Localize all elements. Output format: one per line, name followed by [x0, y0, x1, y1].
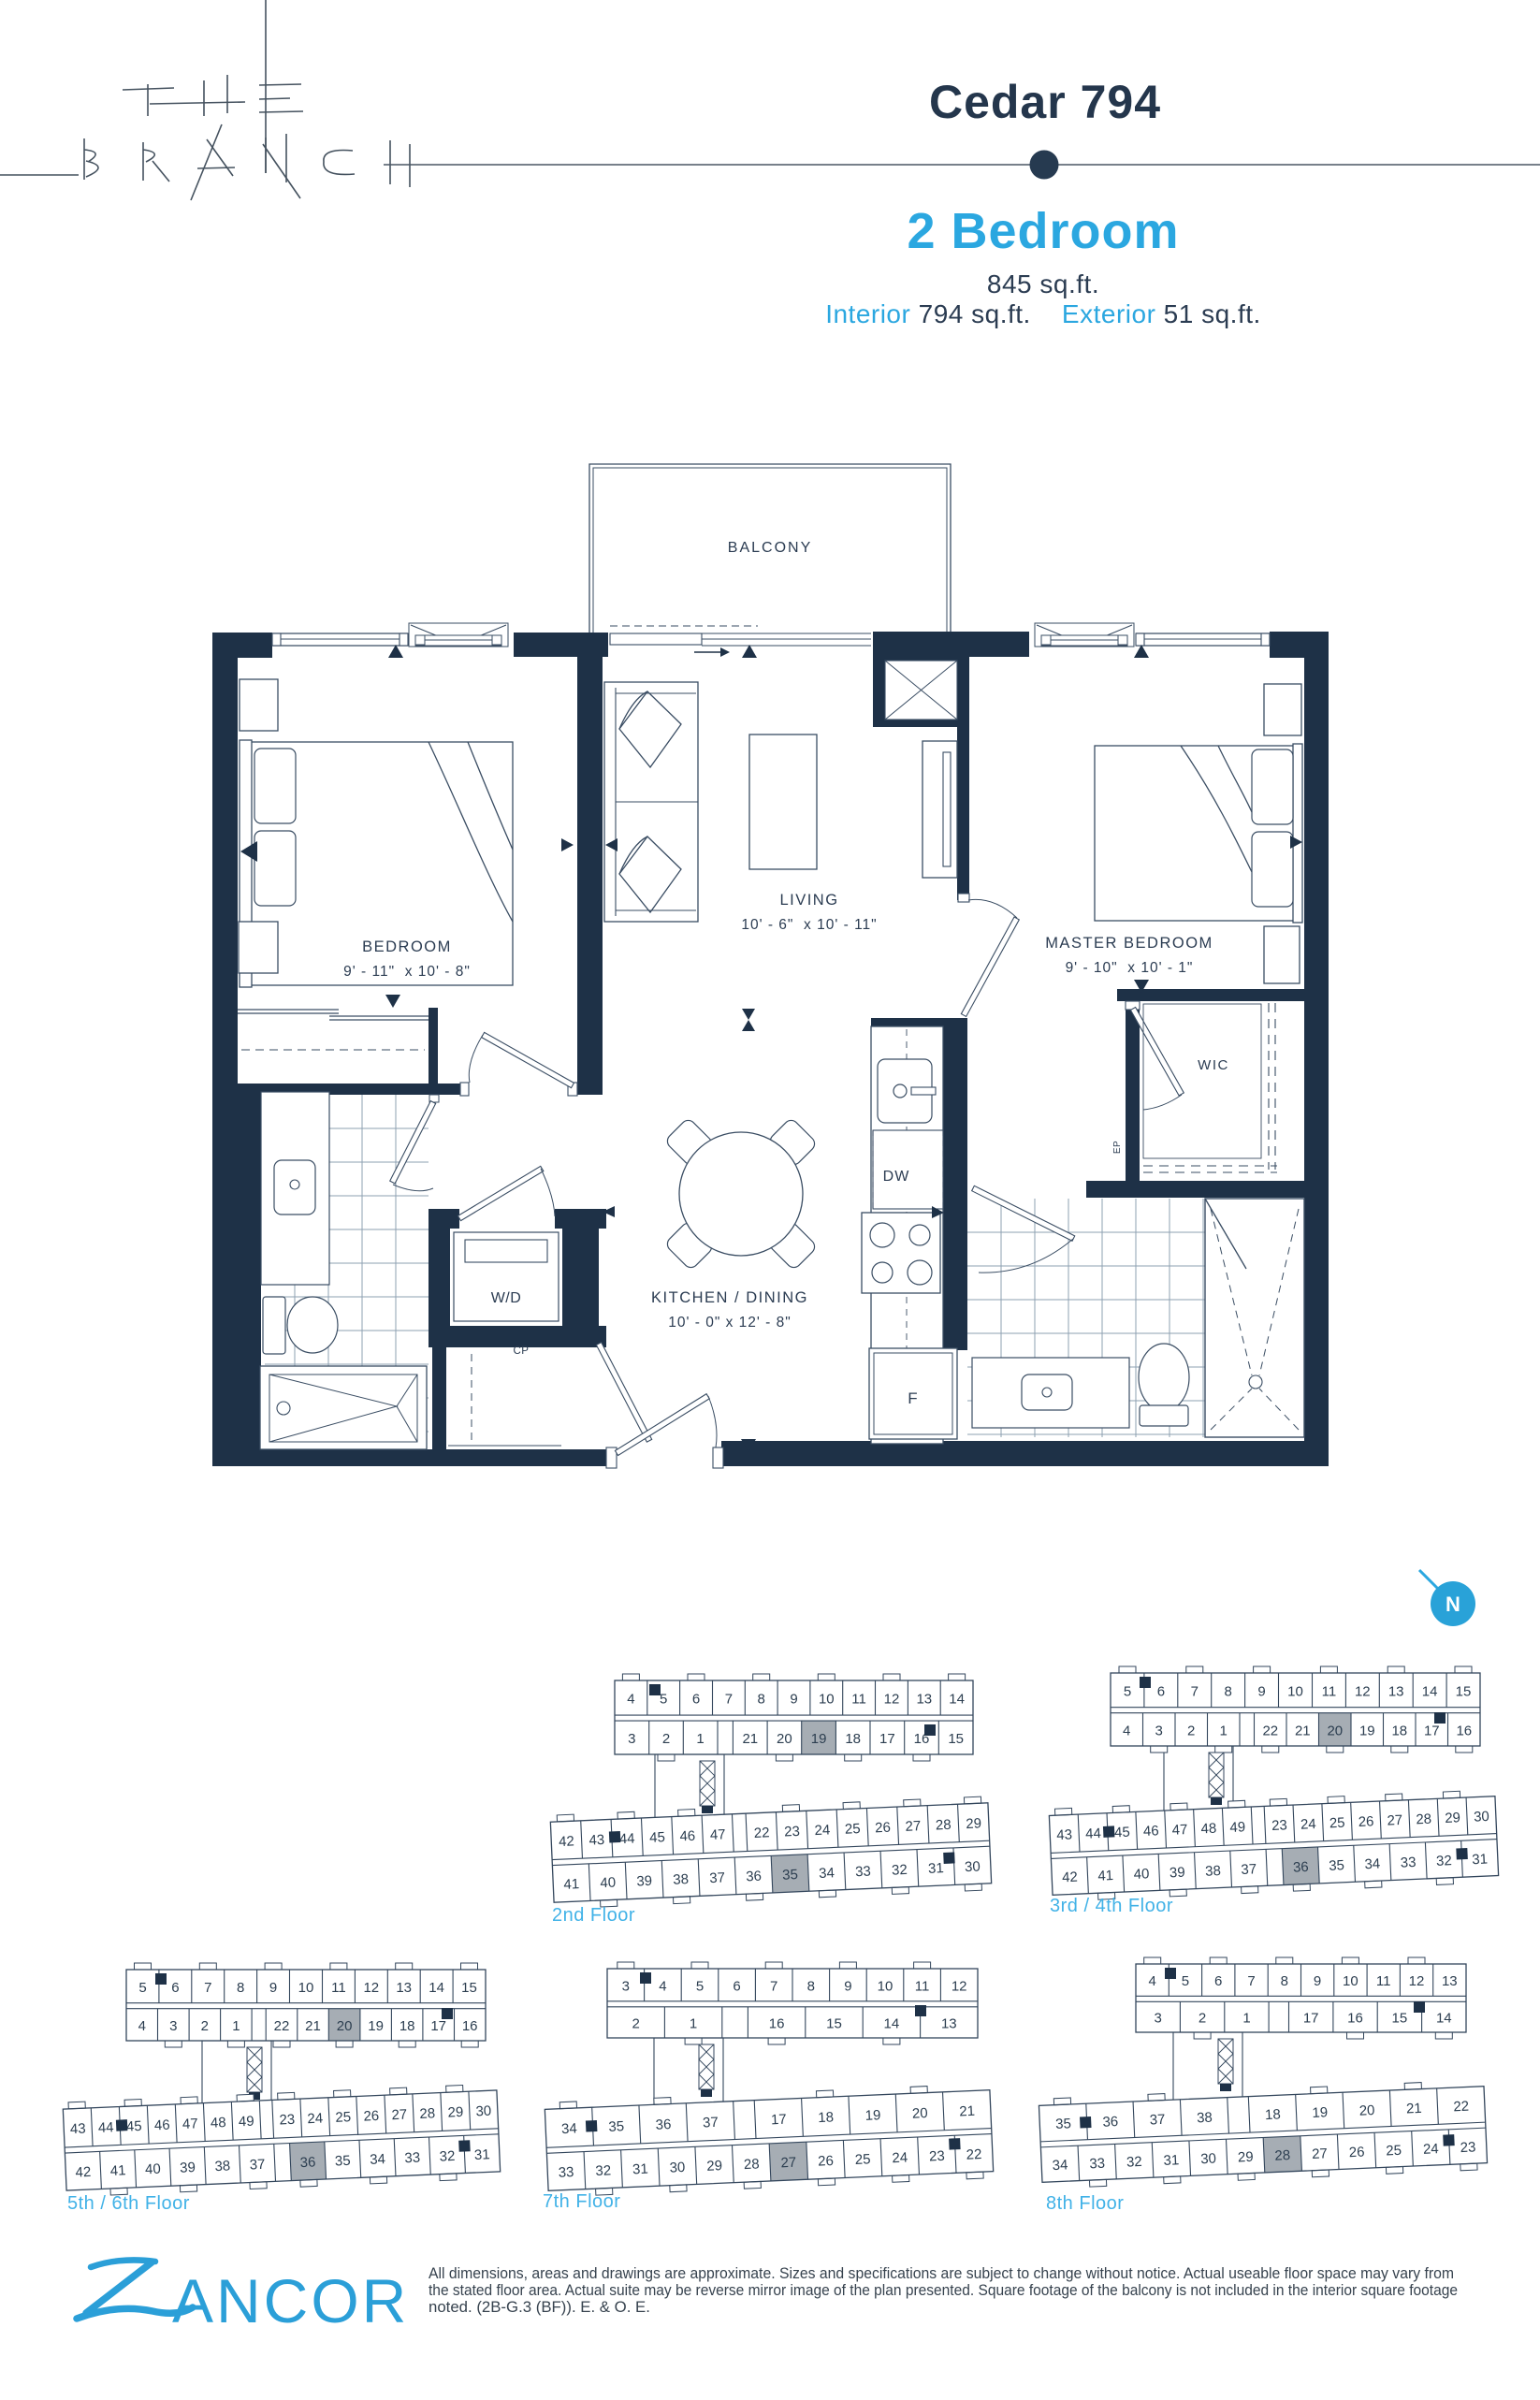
svg-text:25: 25 [854, 2151, 870, 2168]
svg-text:33: 33 [558, 2164, 574, 2181]
svg-text:16: 16 [1456, 1723, 1472, 1738]
svg-text:EP: EP [1112, 1141, 1123, 1154]
svg-text:26: 26 [875, 1820, 891, 1837]
svg-text:4: 4 [1149, 1973, 1156, 1989]
svg-text:10' - 6" x 10' - 11": 10' - 6" x 10' - 11" [741, 917, 877, 933]
svg-text:48: 48 [211, 2115, 226, 2131]
svg-text:24: 24 [1423, 2141, 1439, 2158]
svg-text:21: 21 [742, 1731, 758, 1747]
svg-text:43: 43 [1056, 1826, 1072, 1843]
svg-text:18: 18 [1265, 2106, 1281, 2123]
svg-text:15: 15 [1456, 1683, 1472, 1699]
svg-text:36: 36 [1293, 1859, 1309, 1876]
svg-text:45: 45 [126, 2118, 142, 2135]
svg-text:39: 39 [180, 2160, 196, 2176]
svg-text:46: 46 [154, 2117, 170, 2134]
svg-text:37: 37 [1149, 2112, 1165, 2129]
svg-text:33: 33 [1089, 2156, 1105, 2173]
svg-text:KITCHEN / DINING: KITCHEN / DINING [651, 1289, 808, 1306]
svg-text:33: 33 [404, 2150, 420, 2167]
svg-text:8: 8 [758, 1692, 765, 1708]
svg-text:20: 20 [777, 1731, 792, 1747]
svg-text:19: 19 [1312, 2104, 1328, 2121]
svg-text:9: 9 [790, 1692, 797, 1708]
svg-text:39: 39 [1170, 1865, 1185, 1882]
svg-text:15: 15 [1392, 2011, 1408, 2027]
svg-text:37: 37 [249, 2157, 265, 2174]
svg-text:28: 28 [1274, 2147, 1290, 2164]
svg-text:13: 13 [396, 1980, 412, 1996]
svg-text:21: 21 [305, 2018, 321, 2034]
svg-text:3rd / 4th Floor: 3rd / 4th Floor [1050, 1896, 1173, 1916]
svg-text:4: 4 [1123, 1723, 1130, 1738]
svg-text:17: 17 [879, 1731, 895, 1747]
svg-text:15: 15 [826, 2015, 842, 2031]
svg-text:25: 25 [335, 2109, 351, 2126]
svg-text:F: F [908, 1389, 918, 1407]
svg-text:31: 31 [928, 1860, 944, 1877]
svg-text:36: 36 [1102, 2114, 1118, 2131]
svg-text:11: 11 [915, 1978, 930, 1994]
svg-text:2 Bedroom: 2 Bedroom [907, 203, 1179, 259]
svg-text:BALCONY: BALCONY [728, 540, 812, 556]
svg-text:BEDROOM: BEDROOM [362, 938, 452, 955]
svg-text:26: 26 [818, 2153, 834, 2170]
svg-text:21: 21 [1406, 2101, 1422, 2117]
svg-text:18: 18 [400, 2018, 415, 2034]
svg-text:30: 30 [1474, 1809, 1489, 1825]
svg-text:22: 22 [1262, 1723, 1278, 1738]
svg-text:ANCOR: ANCOR [172, 2266, 409, 2335]
svg-text:11: 11 [331, 1980, 346, 1996]
svg-text:6: 6 [733, 1978, 740, 1994]
svg-text:20: 20 [337, 2018, 353, 2034]
svg-text:33: 33 [855, 1864, 871, 1881]
svg-text:27: 27 [780, 2155, 796, 2172]
svg-text:32: 32 [595, 2162, 611, 2179]
svg-text:11: 11 [1376, 1973, 1391, 1989]
svg-text:3: 3 [1155, 1723, 1163, 1738]
svg-text:10: 10 [1287, 1683, 1303, 1699]
svg-text:7: 7 [770, 1978, 777, 1994]
svg-text:9: 9 [844, 1978, 851, 1994]
svg-text:43: 43 [70, 2121, 86, 2138]
svg-text:22: 22 [753, 1825, 769, 1841]
svg-text:32: 32 [892, 1862, 908, 1879]
svg-text:10: 10 [878, 1978, 893, 1994]
svg-text:34: 34 [561, 2120, 577, 2137]
svg-text:38: 38 [1205, 1863, 1221, 1880]
svg-text:N: N [1446, 1593, 1460, 1616]
svg-text:42: 42 [1062, 1869, 1078, 1886]
svg-text:17: 17 [771, 2112, 787, 2129]
svg-text:12: 12 [1409, 1973, 1425, 1989]
svg-text:25: 25 [845, 1821, 861, 1838]
svg-text:13: 13 [1388, 1683, 1404, 1699]
svg-text:26: 26 [1348, 2145, 1364, 2161]
svg-text:32: 32 [1436, 1853, 1452, 1869]
svg-text:36: 36 [299, 2154, 315, 2171]
svg-text:6: 6 [692, 1692, 700, 1708]
svg-text:LIVING: LIVING [779, 892, 838, 909]
svg-text:the stated floor area. Actual: the stated floor area. Actual suite may … [429, 2281, 1458, 2299]
svg-text:33: 33 [1400, 1855, 1416, 1871]
svg-text:30: 30 [1200, 2150, 1216, 2167]
svg-text:3: 3 [628, 1731, 635, 1747]
svg-text:41: 41 [563, 1876, 579, 1893]
svg-text:34: 34 [819, 1865, 835, 1882]
svg-text:38: 38 [673, 1871, 689, 1888]
svg-text:11: 11 [851, 1692, 866, 1708]
svg-text:22: 22 [274, 2018, 290, 2034]
svg-text:6: 6 [1214, 1973, 1222, 1989]
svg-text:4: 4 [627, 1692, 634, 1708]
svg-text:41: 41 [109, 2162, 125, 2179]
svg-text:2: 2 [1187, 1723, 1195, 1738]
svg-text:47: 47 [1171, 1822, 1187, 1839]
svg-text:WIC: WIC [1198, 1057, 1229, 1073]
svg-text:1: 1 [690, 2015, 697, 2031]
svg-text:9' - 10" x 10' - 1": 9' - 10" x 10' - 1" [1066, 960, 1194, 976]
svg-text:28: 28 [1416, 1811, 1431, 1828]
svg-text:24: 24 [1300, 1816, 1316, 1833]
svg-text:8: 8 [237, 1980, 244, 1996]
svg-text:34: 34 [1052, 2157, 1068, 2174]
svg-text:49: 49 [239, 2114, 254, 2131]
svg-text:2: 2 [201, 2018, 209, 2034]
svg-text:29: 29 [1238, 2149, 1254, 2166]
svg-text:10' - 0" x 12' - 8": 10' - 0" x 12' - 8" [668, 1315, 792, 1331]
svg-text:14: 14 [884, 2015, 900, 2031]
svg-text:36: 36 [746, 1869, 762, 1885]
svg-text:15: 15 [461, 1980, 477, 1996]
svg-text:38: 38 [1197, 2110, 1213, 2127]
svg-text:All dimensions, areas and draw: All dimensions, areas and drawings are a… [429, 2264, 1454, 2282]
svg-text:9' - 11" x 10' - 8": 9' - 11" x 10' - 8" [343, 964, 471, 980]
svg-text:13: 13 [1442, 1973, 1458, 1989]
svg-text:DW: DW [883, 1169, 910, 1185]
svg-text:5: 5 [1182, 1973, 1189, 1989]
svg-text:17: 17 [1424, 1723, 1440, 1738]
svg-text:12: 12 [1355, 1683, 1371, 1699]
svg-text:5: 5 [138, 1980, 146, 1996]
svg-text:11: 11 [1322, 1683, 1337, 1699]
svg-text:5: 5 [660, 1692, 667, 1708]
svg-text:29: 29 [447, 2104, 463, 2121]
svg-text:40: 40 [145, 2161, 161, 2178]
svg-text:13: 13 [916, 1692, 932, 1708]
svg-text:23: 23 [1271, 1817, 1287, 1834]
svg-text:7: 7 [1191, 1683, 1199, 1699]
svg-text:19: 19 [811, 1731, 827, 1747]
svg-text:8: 8 [1225, 1683, 1232, 1699]
svg-text:31: 31 [1163, 2152, 1179, 2169]
svg-text:27: 27 [905, 1818, 921, 1835]
svg-text:41: 41 [1097, 1868, 1113, 1884]
svg-text:23: 23 [1460, 2139, 1475, 2156]
svg-text:31: 31 [1472, 1852, 1488, 1869]
svg-text:25: 25 [1329, 1815, 1345, 1832]
svg-text:46: 46 [1143, 1823, 1159, 1840]
svg-text:10: 10 [1343, 1973, 1358, 1989]
svg-text:40: 40 [1133, 1866, 1149, 1883]
svg-text:9: 9 [1257, 1683, 1265, 1699]
svg-text:1: 1 [1220, 1723, 1228, 1738]
svg-text:24: 24 [892, 2150, 908, 2167]
svg-text:7: 7 [204, 1980, 211, 1996]
svg-text:29: 29 [966, 1815, 981, 1832]
svg-text:3: 3 [169, 2018, 177, 2034]
svg-text:845 sq.ft.: 845 sq.ft. [987, 269, 1099, 298]
svg-text:31: 31 [474, 2146, 490, 2163]
svg-text:37: 37 [1241, 1861, 1257, 1878]
svg-text:28: 28 [936, 1817, 952, 1834]
svg-text:19: 19 [1359, 1723, 1375, 1738]
svg-text:9: 9 [269, 1980, 277, 1996]
svg-text:27: 27 [1387, 1812, 1402, 1829]
svg-text:30: 30 [475, 2103, 491, 2120]
svg-text:2nd Floor: 2nd Floor [552, 1905, 635, 1926]
svg-text:6: 6 [171, 1980, 179, 1996]
svg-text:32: 32 [439, 2148, 455, 2165]
svg-text:49: 49 [1229, 1819, 1245, 1836]
svg-text:39: 39 [636, 1873, 652, 1890]
svg-text:19: 19 [368, 2018, 384, 2034]
svg-text:25: 25 [1386, 2143, 1402, 2160]
svg-text:35: 35 [608, 2118, 624, 2135]
svg-text:36: 36 [655, 2116, 671, 2133]
svg-text:17: 17 [430, 2018, 446, 2034]
svg-text:21: 21 [1295, 1723, 1311, 1738]
svg-text:40: 40 [600, 1874, 616, 1891]
svg-text:22: 22 [966, 2146, 981, 2163]
svg-text:26: 26 [1358, 1813, 1373, 1830]
svg-text:5: 5 [1124, 1683, 1131, 1699]
svg-text:42: 42 [75, 2164, 91, 2181]
svg-text:12: 12 [952, 1978, 967, 1994]
svg-text:W/D: W/D [491, 1290, 522, 1306]
svg-text:4: 4 [138, 2018, 146, 2034]
svg-text:35: 35 [1329, 1857, 1344, 1874]
svg-text:Interior 794 sq.ft. Exterio: Interior 794 sq.ft. Exterior 51 sq.ft. [825, 299, 1261, 328]
svg-text:14: 14 [949, 1692, 965, 1708]
svg-text:45: 45 [649, 1829, 665, 1846]
svg-text:7th Floor: 7th Floor [543, 2191, 620, 2212]
svg-text:10: 10 [819, 1692, 835, 1708]
svg-text:21: 21 [959, 2103, 975, 2120]
svg-text:44: 44 [98, 2119, 114, 2136]
svg-text:13: 13 [941, 2015, 957, 2031]
svg-text:1: 1 [696, 1731, 704, 1747]
svg-text:20: 20 [1327, 1723, 1343, 1738]
svg-text:24: 24 [814, 1822, 830, 1839]
svg-text:23: 23 [279, 2112, 295, 2129]
svg-text:7: 7 [725, 1692, 733, 1708]
svg-text:4: 4 [659, 1978, 666, 1994]
svg-text:37: 37 [709, 1869, 725, 1886]
svg-text:1: 1 [1242, 2011, 1250, 2027]
svg-text:44: 44 [619, 1831, 635, 1848]
svg-text:17: 17 [1303, 2011, 1319, 2027]
svg-text:18: 18 [845, 1731, 861, 1747]
svg-text:38: 38 [214, 2158, 230, 2175]
svg-text:12: 12 [363, 1980, 379, 1996]
svg-text:14: 14 [1436, 2011, 1452, 2027]
svg-text:10: 10 [298, 1980, 314, 1996]
svg-text:1: 1 [232, 2018, 240, 2034]
svg-text:42: 42 [559, 1833, 574, 1850]
svg-text:27: 27 [1312, 2145, 1328, 2162]
svg-text:24: 24 [307, 2111, 323, 2128]
svg-text:46: 46 [679, 1828, 695, 1845]
svg-text:20: 20 [1358, 2102, 1374, 2119]
svg-text:29: 29 [1445, 1810, 1460, 1826]
svg-text:18: 18 [818, 2109, 834, 2126]
svg-text:34: 34 [1364, 1856, 1380, 1873]
svg-text:6: 6 [1157, 1683, 1165, 1699]
svg-text:44: 44 [1085, 1825, 1101, 1842]
svg-text:3: 3 [1155, 2011, 1162, 2027]
svg-text:2: 2 [662, 1731, 670, 1747]
svg-text:23: 23 [784, 1824, 800, 1840]
svg-text:31: 31 [632, 2161, 648, 2178]
svg-text:CP: CP [514, 1345, 530, 1357]
svg-text:MASTER BEDROOM: MASTER BEDROOM [1045, 935, 1213, 952]
svg-text:19: 19 [864, 2107, 880, 2124]
svg-text:28: 28 [744, 2156, 760, 2173]
svg-text:28: 28 [419, 2105, 435, 2122]
svg-text:20: 20 [912, 2105, 928, 2122]
svg-text:30: 30 [965, 1858, 981, 1875]
svg-text:35: 35 [335, 2153, 351, 2170]
svg-text:15: 15 [948, 1731, 964, 1747]
svg-text:16: 16 [1347, 2011, 1363, 2027]
svg-text:27: 27 [391, 2107, 407, 2124]
svg-text:5: 5 [696, 1978, 704, 1994]
svg-text:35: 35 [1055, 2116, 1071, 2132]
svg-text:23: 23 [929, 2148, 945, 2165]
svg-text:8th Floor: 8th Floor [1046, 2193, 1124, 2214]
svg-text:30: 30 [669, 2160, 685, 2176]
svg-text:37: 37 [703, 2115, 719, 2131]
svg-text:2: 2 [632, 2015, 640, 2031]
svg-text:14: 14 [1422, 1683, 1438, 1699]
svg-text:22: 22 [1453, 2099, 1469, 2116]
svg-text:5th / 6th Floor: 5th / 6th Floor [67, 2193, 190, 2214]
svg-text:8: 8 [1281, 1973, 1288, 1989]
svg-text:48: 48 [1200, 1821, 1216, 1838]
svg-text:43: 43 [588, 1832, 604, 1849]
svg-text:2: 2 [1199, 2011, 1206, 2027]
svg-text:26: 26 [363, 2108, 379, 2125]
svg-text:47: 47 [182, 2116, 198, 2132]
svg-text:noted. (2B-G.3 (BF)). E. & O.: noted. (2B-G.3 (BF)). E. & O. E. [429, 2298, 650, 2316]
svg-text:29: 29 [706, 2158, 722, 2175]
svg-text:16: 16 [769, 2015, 785, 2031]
svg-text:7: 7 [1247, 1973, 1255, 1989]
svg-text:35: 35 [782, 1867, 798, 1884]
svg-text:47: 47 [710, 1826, 726, 1843]
svg-text:8: 8 [807, 1978, 815, 1994]
svg-text:14: 14 [429, 1980, 444, 1996]
svg-text:3: 3 [622, 1978, 630, 1994]
svg-text:16: 16 [462, 2018, 478, 2034]
svg-text:18: 18 [1391, 1723, 1407, 1738]
svg-text:34: 34 [370, 2151, 385, 2168]
svg-text:12: 12 [884, 1692, 900, 1708]
svg-text:9: 9 [1314, 1973, 1321, 1989]
svg-text:45: 45 [1114, 1825, 1130, 1841]
svg-text:Cedar 794: Cedar 794 [929, 76, 1161, 128]
svg-text:32: 32 [1126, 2154, 1142, 2171]
